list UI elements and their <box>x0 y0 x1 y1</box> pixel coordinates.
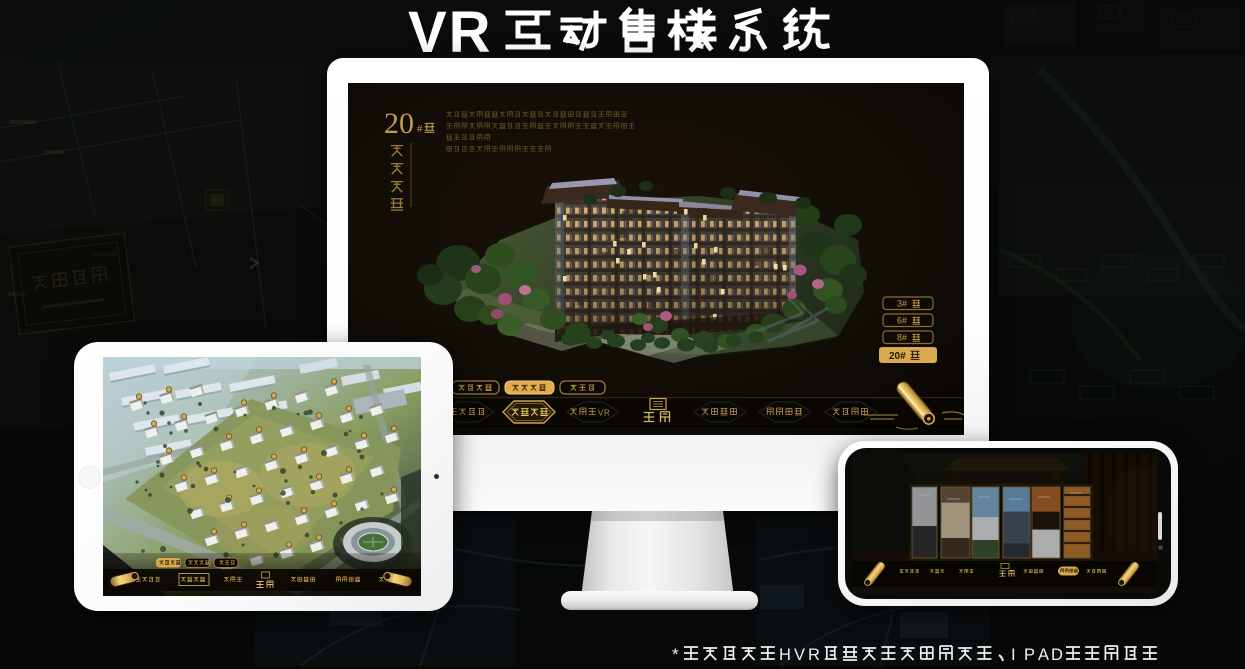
svg-text:#: # <box>417 123 423 135</box>
svg-text:P: P <box>1024 646 1035 664</box>
svg-text:20: 20 <box>384 107 414 140</box>
svg-text:8#: 8# <box>897 333 907 343</box>
svg-text:A: A <box>1038 646 1049 664</box>
svg-text:H: H <box>779 646 791 664</box>
svg-text:R: R <box>604 409 610 418</box>
svg-text:VR: VR <box>408 1 493 61</box>
svg-text:3#: 3# <box>897 299 907 309</box>
svg-text:V: V <box>794 646 805 664</box>
svg-text:D: D <box>1051 646 1063 664</box>
svg-text:R: R <box>808 646 820 664</box>
svg-text:6#: 6# <box>897 316 907 326</box>
svg-text:20#: 20# <box>889 351 906 362</box>
svg-text:*: * <box>672 645 679 664</box>
svg-text:I: I <box>1011 646 1016 664</box>
